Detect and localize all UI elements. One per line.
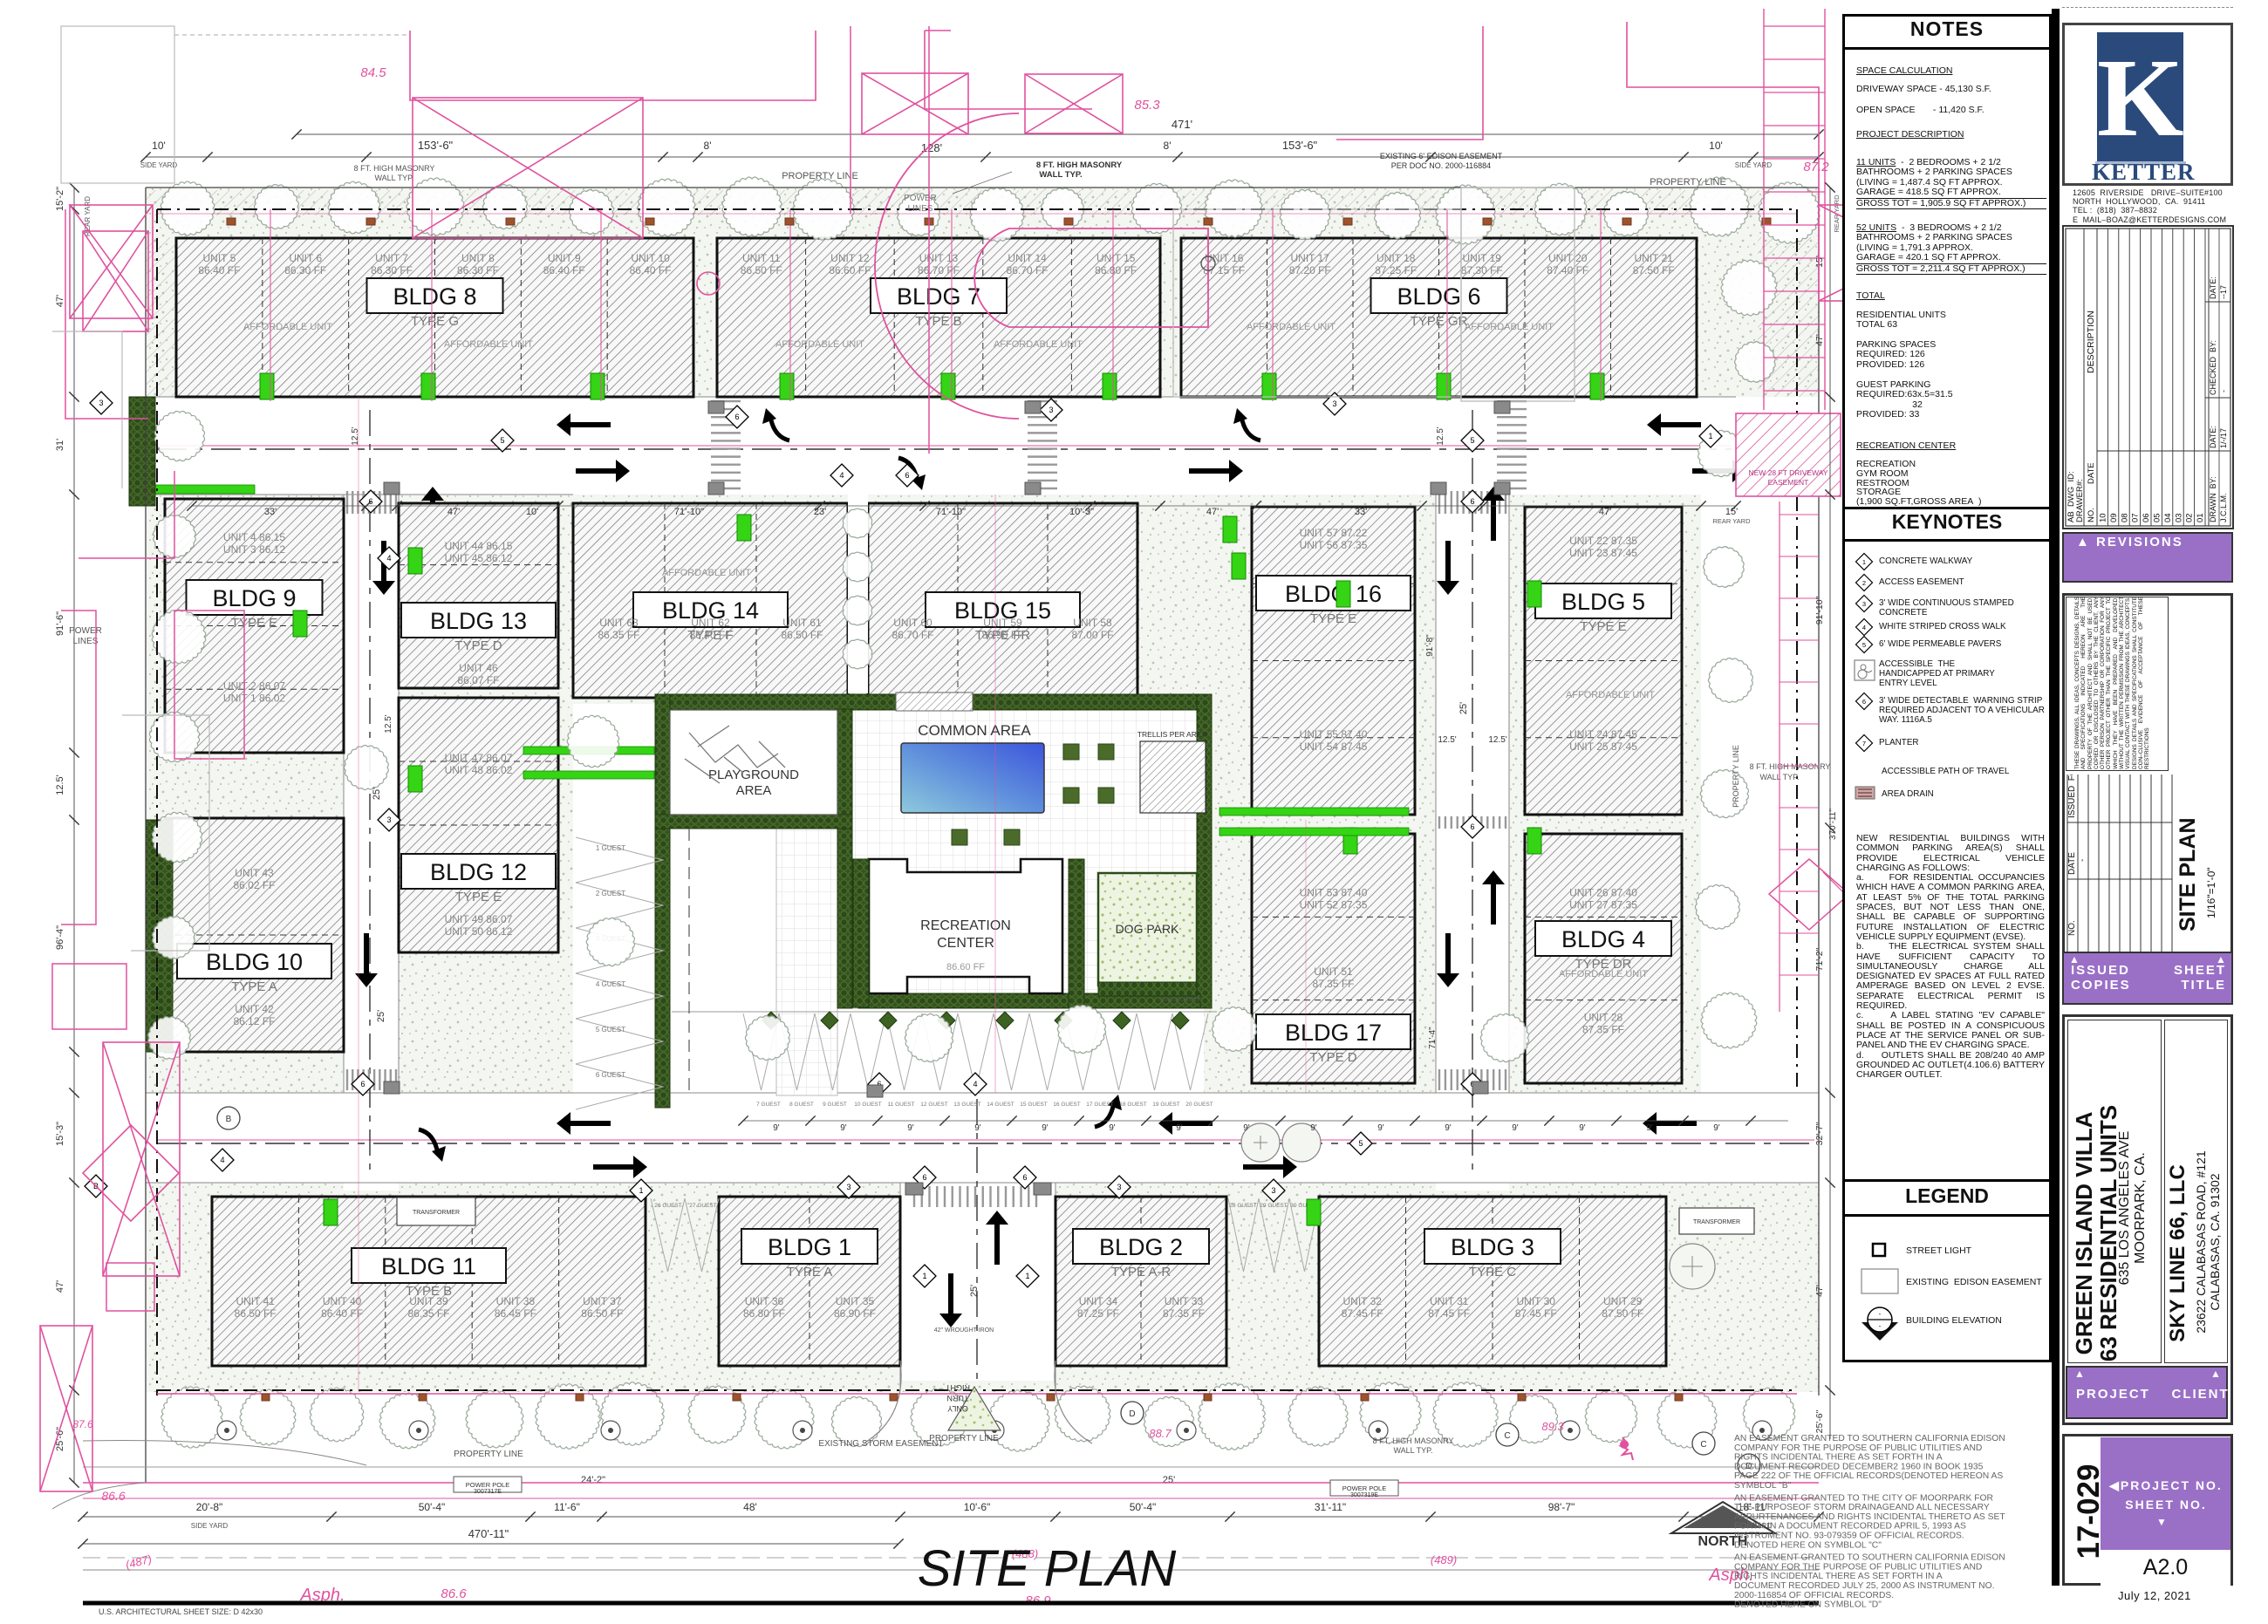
- svg-text:POWER: POWER: [904, 194, 937, 203]
- svg-text:12.5': 12.5': [55, 774, 65, 795]
- svg-text:TYPE GR: TYPE GR: [1411, 314, 1468, 329]
- svg-text:DATE: DATE: [2067, 852, 2077, 875]
- svg-text:UNIT 45 86.12: UNIT 45 86.12: [445, 552, 513, 564]
- svg-text:J.C.L.M.: J.C.L.M.: [2219, 493, 2228, 522]
- svg-text:WALL TYP.: WALL TYP.: [1393, 1446, 1432, 1455]
- svg-text:87.50 FF: 87.50 FF: [1633, 264, 1675, 276]
- svg-text:15'-2": 15'-2": [55, 187, 65, 211]
- svg-text:86.50 FF: 86.50 FF: [235, 1307, 277, 1320]
- svg-text:BLDG 7: BLDG 7: [897, 283, 980, 310]
- svg-text:47': 47': [1206, 507, 1219, 517]
- svg-text:04: 04: [2163, 513, 2173, 522]
- svg-text:-: -: [2219, 390, 2228, 392]
- svg-text:RECREATION: RECREATION: [920, 918, 1011, 933]
- svg-text:ISSUED FOR: ISSUED FOR: [2067, 774, 2077, 818]
- svg-text:AN EASEMENT GRANTED TO SOUTHER: AN EASEMENT GRANTED TO SOUTHERN CALIFORN…: [1734, 1553, 2005, 1563]
- svg-text:87.30 FF: 87.30 FF: [1461, 264, 1503, 276]
- svg-text:25': 25': [1458, 702, 1469, 714]
- svg-text:87.40 FF: 87.40 FF: [1547, 264, 1588, 276]
- svg-text:6: 6: [1470, 822, 1474, 831]
- svg-text:ONLY: ONLY: [947, 1404, 968, 1413]
- svg-text:UNIT 27 87.35: UNIT 27 87.35: [1569, 899, 1637, 911]
- svg-text:PROPERTY LINE: PROPERTY LINE: [1650, 177, 1726, 188]
- svg-text:153'-6": 153'-6": [418, 139, 454, 152]
- svg-text:AFFORDABLE UNIT: AFFORDABLE UNIT: [444, 339, 533, 350]
- svg-text:TYPE E: TYPE E: [231, 616, 277, 631]
- svg-text:UNIT 53 87.40: UNIT 53 87.40: [1300, 887, 1368, 899]
- svg-text:DRAWN BY:: DRAWN BY:: [2209, 476, 2217, 522]
- svg-text:13 GUEST: 13 GUEST: [953, 1102, 980, 1108]
- svg-text:BLDG 10: BLDG 10: [206, 949, 303, 975]
- svg-text:1: 1: [1025, 1272, 1029, 1280]
- svg-text:UNIT 10: UNIT 10: [631, 252, 670, 264]
- svg-text:SITE PLAN: SITE PLAN: [918, 1540, 1177, 1597]
- svg-text:UNIT 1 86.02: UNIT 1 86.02: [223, 692, 285, 704]
- svg-text:9': 9': [840, 1123, 847, 1133]
- svg-text:86.07 FF: 86.07 FF: [457, 674, 499, 686]
- svg-text:UNIT 37: UNIT 37: [583, 1295, 622, 1307]
- svg-text:3: 3: [1862, 600, 1866, 608]
- svg-text:NO.: NO.: [2087, 508, 2096, 522]
- svg-text:AN EASEMENT GRANTED TO SOUTHER: AN EASEMENT GRANTED TO SOUTHERN CALIFORN…: [1734, 1434, 2005, 1443]
- svg-text:TYPE E: TYPE E: [1310, 611, 1356, 626]
- svg-text:TYPE E: TYPE E: [455, 890, 502, 904]
- svg-text:91'-8": 91'-8": [1425, 634, 1435, 657]
- svg-text:11 GUEST: 11 GUEST: [888, 1102, 915, 1108]
- svg-text:UNIT 8: UNIT 8: [461, 252, 495, 264]
- svg-text:DATE:: DATE:: [2209, 426, 2217, 448]
- svg-text:EXISTING STORM EASEMENT: EXISTING STORM EASEMENT: [818, 1439, 943, 1449]
- svg-text:AFFORDABLE UNIT: AFFORDABLE UNIT: [1559, 969, 1648, 979]
- svg-text:9': 9': [773, 1123, 780, 1133]
- svg-text:28 GUEST: 28 GUEST: [1229, 1203, 1256, 1209]
- svg-text:BLDG 2: BLDG 2: [1099, 1234, 1183, 1260]
- svg-text:UNIT 63: UNIT 63: [599, 617, 639, 629]
- svg-text:UNIT 48 86.02: UNIT 48 86.02: [445, 764, 513, 776]
- svg-text:86.6: 86.6: [101, 1489, 125, 1503]
- svg-text:86.12 FF: 86.12 FF: [233, 1015, 275, 1027]
- svg-text:TYPE E: TYPE E: [1580, 619, 1626, 634]
- svg-text:UNIT 44 86.15: UNIT 44 86.15: [445, 540, 513, 552]
- svg-text:SIDE YARD: SIDE YARD: [140, 161, 178, 169]
- svg-text:87.35 FF: 87.35 FF: [1163, 1307, 1205, 1320]
- svg-text:UNIT 47 86.07: UNIT 47 86.07: [445, 752, 513, 764]
- svg-text:RIGHTS INCIDENTAL THERE AS SET: RIGHTS INCIDENTAL THERE AS SET FORTH IN …: [1734, 1453, 1943, 1463]
- svg-text:AREA: AREA: [736, 783, 772, 798]
- svg-text:91'-6": 91'-6": [55, 611, 65, 636]
- svg-text:96'-4": 96'-4": [55, 925, 65, 950]
- svg-text:10 GUEST: 10 GUEST: [854, 1102, 881, 1108]
- svg-text:87.00 FF: 87.00 FF: [1071, 629, 1113, 641]
- svg-text:BLDG 12: BLDG 12: [430, 859, 527, 885]
- svg-text:UNIT 25 87.45: UNIT 25 87.45: [1569, 740, 1637, 753]
- svg-text:2: 2: [1862, 579, 1866, 587]
- svg-text:UNIT 5: UNIT 5: [203, 252, 236, 264]
- svg-text:DOG PARK: DOG PARK: [1116, 922, 1180, 936]
- svg-text:33': 33': [1355, 507, 1367, 517]
- svg-text:UNIT 60: UNIT 60: [893, 617, 932, 629]
- svg-text:U.S. ARCHITECTURAL SHEET SIZE:: U.S. ARCHITECTURAL SHEET SIZE: D 42x30: [99, 1607, 263, 1616]
- svg-text:6: 6: [1862, 698, 1866, 706]
- svg-text:86.35 FF: 86.35 FF: [598, 629, 639, 641]
- svg-text:WALL TYP.: WALL TYP.: [374, 174, 413, 182]
- svg-text:05: 05: [2153, 513, 2162, 522]
- svg-text:8 GUEST: 8 GUEST: [789, 1102, 814, 1108]
- svg-text:UNIT 36: UNIT 36: [745, 1295, 784, 1307]
- svg-text:8': 8': [704, 140, 712, 152]
- svg-text:9': 9': [1377, 1123, 1384, 1133]
- svg-text:1/-/17: 1/-/17: [2219, 428, 2228, 448]
- svg-text:SIDE YARD: SIDE YARD: [1735, 161, 1773, 169]
- svg-text:UNIT 26 87.40: UNIT 26 87.40: [1569, 887, 1637, 899]
- svg-text:470'-11": 470'-11": [468, 1527, 509, 1540]
- svg-text:POWER POLE: POWER POLE: [466, 1481, 509, 1489]
- svg-text:UNIT 14: UNIT 14: [1008, 252, 1047, 264]
- svg-text:AN EASEMENT GRANTED TO THE CIT: AN EASEMENT GRANTED TO THE CITY OF MOORP…: [1734, 1493, 1993, 1503]
- svg-text:9': 9': [1579, 1123, 1586, 1133]
- svg-text:25': 25': [969, 1285, 980, 1297]
- svg-text:PROPERTY LINE: PROPERTY LINE: [782, 171, 858, 181]
- svg-text:TYPE B: TYPE B: [915, 314, 961, 329]
- svg-text:UNIT 54 87.45: UNIT 54 87.45: [1300, 740, 1368, 753]
- svg-text:71'-10": 71'-10": [936, 507, 966, 517]
- svg-text:15'-3": 15'-3": [55, 1122, 65, 1146]
- svg-text:UNIT 43: UNIT 43: [235, 867, 274, 879]
- svg-text:6: 6: [1470, 497, 1474, 506]
- svg-text:47': 47': [55, 1280, 65, 1293]
- svg-text:UNIT 20: UNIT 20: [1548, 252, 1588, 264]
- svg-text:B: B: [226, 1115, 232, 1124]
- svg-text:UNIT 11: UNIT 11: [742, 252, 781, 264]
- svg-text:SIDE YARD: SIDE YARD: [191, 1522, 229, 1530]
- svg-text:153'-6": 153'-6": [1282, 139, 1318, 152]
- svg-text:86.45 FF: 86.45 FF: [495, 1307, 536, 1320]
- svg-text:AFFORDABLE UNIT: AFFORDABLE UNIT: [994, 339, 1083, 350]
- svg-text:9': 9': [1109, 1123, 1116, 1133]
- svg-text:10'-3": 10'-3": [1069, 507, 1094, 517]
- svg-text:87.2: 87.2: [1803, 160, 1829, 174]
- svg-text:42″ WROUGHT IRON: 42″ WROUGHT IRON: [934, 1327, 994, 1334]
- svg-text:UNIT 22 87.35: UNIT 22 87.35: [1569, 535, 1637, 547]
- svg-text:2 GUEST: 2 GUEST: [596, 890, 625, 897]
- svg-text:08: 08: [2120, 513, 2129, 522]
- svg-text:NO.: NO.: [2067, 920, 2077, 936]
- svg-text:6: 6: [360, 1080, 365, 1088]
- svg-text:19 GUEST: 19 GUEST: [1152, 1102, 1179, 1108]
- svg-text:25'-6": 25'-6": [1814, 1409, 1825, 1433]
- svg-text:8': 8': [1164, 140, 1172, 152]
- svg-text:5: 5: [1470, 436, 1474, 445]
- svg-text:3: 3: [1332, 399, 1336, 408]
- svg-text:86.50 FF: 86.50 FF: [581, 1307, 623, 1320]
- svg-text:TRANSFORMER: TRANSFORMER: [1693, 1219, 1740, 1225]
- svg-text:12 GUEST: 12 GUEST: [920, 1102, 947, 1108]
- svg-text:10: 10: [2099, 513, 2108, 522]
- svg-text:2000-116854 OF OFFICIAL RECORD: 2000-116854 OF OFFICIAL RECORDS.: [1734, 1591, 1894, 1600]
- svg-text:UNIT 33: UNIT 33: [1165, 1295, 1204, 1307]
- svg-text:86.90 FF: 86.90 FF: [834, 1307, 876, 1320]
- svg-text:BLDG 8: BLDG 8: [393, 283, 476, 310]
- svg-text:CENTER: CENTER: [937, 936, 994, 951]
- svg-text:(489): (489): [1431, 1553, 1457, 1566]
- svg-text:UNIT 9: UNIT 9: [548, 252, 581, 264]
- svg-text:8 FT. HIGH MASONRY: 8 FT. HIGH MASONRY: [1750, 762, 1831, 771]
- svg-text:UNIT 59: UNIT 59: [983, 617, 1022, 629]
- svg-text:471': 471': [1172, 118, 1192, 131]
- svg-text:27 GUEST: 27 GUEST: [689, 1203, 716, 1209]
- svg-text:BLDG 1: BLDG 1: [768, 1234, 851, 1260]
- svg-text:AFFORDABLE UNIT: AFFORDABLE UNIT: [1465, 322, 1554, 332]
- svg-text:UNIT 55 87.40: UNIT 55 87.40: [1300, 728, 1368, 740]
- svg-text:TYPE A: TYPE A: [231, 979, 277, 994]
- svg-text:33': 33': [264, 507, 277, 517]
- svg-text:86.70 FF: 86.70 FF: [918, 264, 960, 276]
- svg-text:86.02 FF: 86.02 FF: [233, 879, 275, 891]
- svg-text:TRELLIS PER ARCH: TRELLIS PER ARCH: [1137, 730, 1207, 739]
- svg-text:UNIT 21: UNIT 21: [1635, 252, 1674, 264]
- svg-text:UNIT 31: UNIT 31: [1430, 1295, 1469, 1307]
- svg-text:8 FT. HIGH MASONRY: 8 FT. HIGH MASONRY: [1036, 160, 1123, 170]
- svg-text:7 GUEST: 7 GUEST: [756, 1102, 781, 1108]
- svg-text:98'-7": 98'-7": [1548, 1501, 1575, 1513]
- svg-text:4 GUEST: 4 GUEST: [596, 980, 625, 988]
- svg-text:29 GUEST: 29 GUEST: [1260, 1203, 1287, 1209]
- svg-text:9': 9': [1243, 1123, 1250, 1133]
- svg-text:C: C: [1700, 1440, 1706, 1450]
- svg-text:FORTH IN A DOCUMENT RECORDED A: FORTH IN A DOCUMENT RECORDED APRIL 5, 19…: [1734, 1522, 1966, 1532]
- svg-text:--17: --17: [2219, 285, 2228, 299]
- svg-text:4: 4: [973, 1080, 977, 1088]
- svg-text:UNIT 61: UNIT 61: [782, 617, 822, 629]
- svg-text:UNIT 58: UNIT 58: [1073, 617, 1112, 629]
- svg-text:86.40 FF: 86.40 FF: [630, 264, 672, 276]
- svg-text:25': 25': [1163, 1475, 1175, 1485]
- svg-text:1/16"=1'-0": 1/16"=1'-0": [2205, 867, 2217, 918]
- svg-text:02: 02: [2185, 513, 2195, 522]
- svg-text:CHECKED BY:: CHECKED BY:: [2209, 340, 2217, 395]
- svg-text:UNIT 38: UNIT 38: [496, 1295, 536, 1307]
- svg-text:88.7: 88.7: [1149, 1427, 1172, 1440]
- svg-text:SYMBLOL "B": SYMBLOL "B": [1734, 1481, 1792, 1491]
- svg-text:SITE PLAN: SITE PLAN: [2176, 817, 2200, 931]
- svg-text:-: -: [2078, 859, 2087, 862]
- svg-text:10': 10': [152, 140, 166, 152]
- svg-text:86.70 FF: 86.70 FF: [1007, 264, 1049, 276]
- svg-text:86.80 FF: 86.80 FF: [1095, 264, 1137, 276]
- svg-text:RIGHT: RIGHT: [946, 1383, 971, 1392]
- svg-text:1: 1: [922, 1272, 926, 1280]
- svg-text:9': 9': [1646, 1123, 1653, 1133]
- svg-text:3: 3: [846, 1183, 850, 1191]
- svg-text:UNIT 6: UNIT 6: [289, 252, 322, 264]
- svg-text:87.20 FF: 87.20 FF: [1289, 264, 1331, 276]
- svg-text:7: 7: [1862, 740, 1866, 747]
- svg-text:4: 4: [1862, 624, 1866, 631]
- svg-text:11'-6": 11'-6": [554, 1501, 580, 1513]
- svg-text:01: 01: [2196, 513, 2205, 522]
- svg-text:TURN: TURN: [947, 1394, 969, 1402]
- svg-text:THE PURPOSEOF STORM DRAINAGEAN: THE PURPOSEOF STORM DRAINAGEAND ALL NECE…: [1734, 1503, 1990, 1512]
- svg-text:TYPE D: TYPE D: [454, 638, 502, 653]
- svg-text:18 GUEST: 18 GUEST: [1119, 1102, 1146, 1108]
- svg-text:47': 47': [447, 507, 460, 517]
- svg-text:PROPERTY LINE: PROPERTY LINE: [1732, 745, 1740, 808]
- svg-text:86.60 FF: 86.60 FF: [829, 264, 871, 276]
- svg-text:COMMON AREA: COMMON AREA: [918, 722, 1031, 739]
- svg-text:BLDG 13: BLDG 13: [430, 608, 527, 634]
- svg-text:DOCUMENT RECORDED DECEMBER2 19: DOCUMENT RECORDED DECEMBER2 1960 IN BOOK…: [1734, 1462, 1984, 1471]
- svg-text:PROPERTY LINE: PROPERTY LINE: [454, 1450, 523, 1459]
- svg-text:71'-2": 71'-2": [1814, 947, 1825, 971]
- svg-text:3: 3: [99, 399, 103, 407]
- svg-text:84.5: 84.5: [360, 65, 386, 80]
- svg-text:UNIT 16: UNIT 16: [1205, 252, 1244, 264]
- svg-text:6: 6: [1022, 1173, 1027, 1182]
- svg-text:87.45 FF: 87.45 FF: [1515, 1307, 1557, 1320]
- svg-text:09: 09: [2109, 513, 2119, 522]
- svg-text:UNIT 49 86.07: UNIT 49 86.07: [445, 913, 513, 925]
- svg-text:3: 3: [1049, 406, 1053, 414]
- svg-text:4: 4: [386, 554, 391, 563]
- svg-text:5: 5: [500, 436, 504, 445]
- svg-text:INSTRUMENT NO. 93-079359 OF OF: INSTRUMENT NO. 93-079359 OF OFFICIAL REC…: [1734, 1532, 1964, 1541]
- svg-text:APPURTENANCES AND RIGHTS INCID: APPURTENANCES AND RIGHTS INCIDENTAL THER…: [1734, 1512, 2005, 1522]
- svg-text:UNIT 29: UNIT 29: [1603, 1295, 1643, 1307]
- svg-text:5: 5: [1358, 1139, 1363, 1148]
- svg-text:91'-10": 91'-10": [1814, 596, 1825, 624]
- svg-text:PER DOC NO. 2000-116884: PER DOC NO. 2000-116884: [1391, 161, 1491, 170]
- svg-text:86.40 FF: 86.40 FF: [543, 264, 585, 276]
- svg-text:9': 9': [1176, 1123, 1183, 1133]
- svg-text:17 GUEST: 17 GUEST: [1086, 1102, 1113, 1108]
- svg-text:25': 25': [376, 1010, 386, 1022]
- svg-text:PROPERTY LINE: PROPERTY LINE: [929, 1434, 999, 1443]
- svg-text:UNIT 51: UNIT 51: [1314, 966, 1353, 978]
- svg-text:TYPE D: TYPE D: [1309, 1050, 1356, 1065]
- svg-text:UNIT 40: UNIT 40: [323, 1295, 362, 1307]
- svg-text:8 FT. HIGH MASONRY: 8 FT. HIGH MASONRY: [1373, 1436, 1454, 1445]
- svg-text:C: C: [1504, 1431, 1510, 1441]
- svg-text:RIGHTS INCIDENTAL THERE AS SET: RIGHTS INCIDENTAL THERE AS SET FORTH IN …: [1734, 1572, 1943, 1581]
- svg-text:86.30 FF: 86.30 FF: [284, 264, 326, 276]
- svg-text:9': 9': [907, 1123, 914, 1133]
- svg-text:47': 47': [1814, 334, 1825, 346]
- svg-text:BLDG 9: BLDG 9: [212, 585, 296, 611]
- svg-text:10': 10': [526, 507, 538, 517]
- svg-text:1: 1: [639, 1186, 643, 1195]
- svg-text:AFFORDABLE UNIT: AFFORDABLE UNIT: [662, 568, 751, 578]
- svg-text:-: -: [1879, 1322, 1882, 1330]
- svg-text:32'-7": 32'-7": [1814, 1122, 1825, 1145]
- svg-text:UNIT 34: UNIT 34: [1079, 1295, 1118, 1307]
- svg-text:25': 25': [372, 788, 382, 800]
- svg-text:UNIT 56 87.35: UNIT 56 87.35: [1300, 539, 1368, 551]
- svg-text:EXISTING 6' EDISON EASEMENT: EXISTING 6' EDISON EASEMENT: [1380, 152, 1503, 160]
- svg-text:87.25 FF: 87.25 FF: [1375, 264, 1417, 276]
- svg-text:86.50 FF: 86.50 FF: [741, 264, 782, 276]
- svg-text:TYPE G: TYPE G: [411, 314, 459, 329]
- svg-text:86.60 FF: 86.60 FF: [946, 962, 985, 972]
- svg-text:03: 03: [2174, 513, 2183, 522]
- svg-text:UNIT 2 86.07: UNIT 2 86.07: [223, 679, 285, 692]
- svg-text:LINES: LINES: [73, 637, 99, 646]
- svg-text:UNIT 30: UNIT 30: [1517, 1295, 1556, 1307]
- svg-text:UNIT 57 87.22: UNIT 57 87.22: [1300, 527, 1368, 539]
- svg-text:23': 23': [814, 507, 826, 517]
- svg-text:89.3: 89.3: [1541, 1420, 1564, 1433]
- svg-text:86.40 FF: 86.40 FF: [198, 264, 240, 276]
- svg-text:87.25 FF: 87.25 FF: [1077, 1307, 1119, 1320]
- svg-text:87.45 FF: 87.45 FF: [1342, 1307, 1383, 1320]
- svg-text:POWER POLE: POWER POLE: [1342, 1484, 1386, 1492]
- svg-text:87.45 FF: 87.45 FF: [1428, 1307, 1470, 1320]
- svg-text:15 GUEST: 15 GUEST: [1020, 1102, 1047, 1108]
- svg-text:14 GUEST: 14 GUEST: [987, 1102, 1014, 1108]
- svg-text:UNIT 19: UNIT 19: [1463, 252, 1502, 264]
- svg-text:COMPANY FOR THE PURPOSE OF PUB: COMPANY FOR THE PURPOSE OF PUBLIC UTILIT…: [1734, 1443, 1982, 1453]
- svg-text:3007317E: 3007317E: [474, 1489, 502, 1495]
- svg-text:6: 6: [905, 471, 909, 480]
- svg-text:10': 10': [1709, 140, 1723, 152]
- svg-text:6: 6: [734, 413, 739, 421]
- svg-text:UNIT 62: UNIT 62: [691, 617, 730, 629]
- svg-text:DRAWER#:: DRAWER#:: [2075, 479, 2085, 522]
- svg-text:UNIT 28: UNIT 28: [1584, 1012, 1623, 1024]
- svg-text:3: 3: [1271, 1186, 1275, 1195]
- svg-text:5: 5: [1862, 641, 1866, 649]
- svg-text:86.80 FF: 86.80 FF: [743, 1307, 785, 1320]
- svg-text:UNIT 23 87.45: UNIT 23 87.45: [1569, 547, 1637, 559]
- svg-text:86.90 FF: 86.90 FF: [981, 629, 1023, 641]
- svg-text:87.35 FF: 87.35 FF: [1582, 1024, 1624, 1036]
- svg-text:12.5': 12.5': [351, 426, 360, 445]
- svg-text:6: 6: [922, 1173, 926, 1182]
- svg-text:86.40 FF: 86.40 FF: [689, 629, 731, 641]
- svg-text:15': 15': [1725, 507, 1738, 517]
- svg-text:15': 15': [1814, 256, 1825, 268]
- svg-text:12.5': 12.5': [1488, 735, 1506, 745]
- svg-text:AFFORDABLE UNIT: AFFORDABLE UNIT: [1247, 322, 1336, 332]
- svg-text:50'-4": 50'-4": [1130, 1501, 1157, 1513]
- svg-text:1: 1: [1708, 432, 1712, 440]
- svg-text:WALL TYP.: WALL TYP.: [1039, 170, 1082, 180]
- svg-text:5 GUEST: 5 GUEST: [596, 1026, 625, 1034]
- svg-text:9': 9': [1445, 1123, 1452, 1133]
- svg-text:PAGE 222 OF THE OFFICIAL RECOR: PAGE 222 OF THE OFFICIAL RECORDS(DENOTED…: [1734, 1471, 2003, 1481]
- svg-text:86.30 FF: 86.30 FF: [457, 264, 499, 276]
- svg-text:UNIT 35: UNIT 35: [836, 1295, 875, 1307]
- svg-text:TYPE C: TYPE C: [1469, 1265, 1516, 1279]
- svg-text:DENOTED HERE ON SYMBLOL "C": DENOTED HERE ON SYMBLOL "C": [1734, 1540, 1882, 1550]
- svg-text:86.30 FF: 86.30 FF: [371, 264, 413, 276]
- svg-text:07: 07: [2131, 513, 2141, 522]
- svg-text:UNIT 12: UNIT 12: [830, 252, 870, 264]
- svg-text:9': 9': [1042, 1123, 1049, 1133]
- svg-text:20 GUEST: 20 GUEST: [1185, 1102, 1213, 1108]
- svg-text:12.5': 12.5': [1438, 735, 1456, 745]
- svg-text:UNIT 7: UNIT 7: [375, 252, 408, 264]
- svg-text:86.6: 86.6: [441, 1586, 467, 1601]
- svg-text:NEW 28 FT DRIVEWAY: NEW 28 FT DRIVEWAY: [1749, 468, 1828, 477]
- svg-text:87.35 FF: 87.35 FF: [1312, 978, 1354, 990]
- svg-text:UNIT 39: UNIT 39: [409, 1295, 448, 1307]
- svg-text:4: 4: [220, 1156, 224, 1164]
- svg-text:UNIT 41: UNIT 41: [236, 1295, 275, 1307]
- svg-text:UNIT 13: UNIT 13: [919, 252, 959, 264]
- svg-text:UNIT 17: UNIT 17: [1291, 252, 1330, 264]
- svg-text:8 FT. HIGH MASONRY: 8 FT. HIGH MASONRY: [354, 164, 435, 173]
- svg-text:47': 47': [55, 295, 65, 307]
